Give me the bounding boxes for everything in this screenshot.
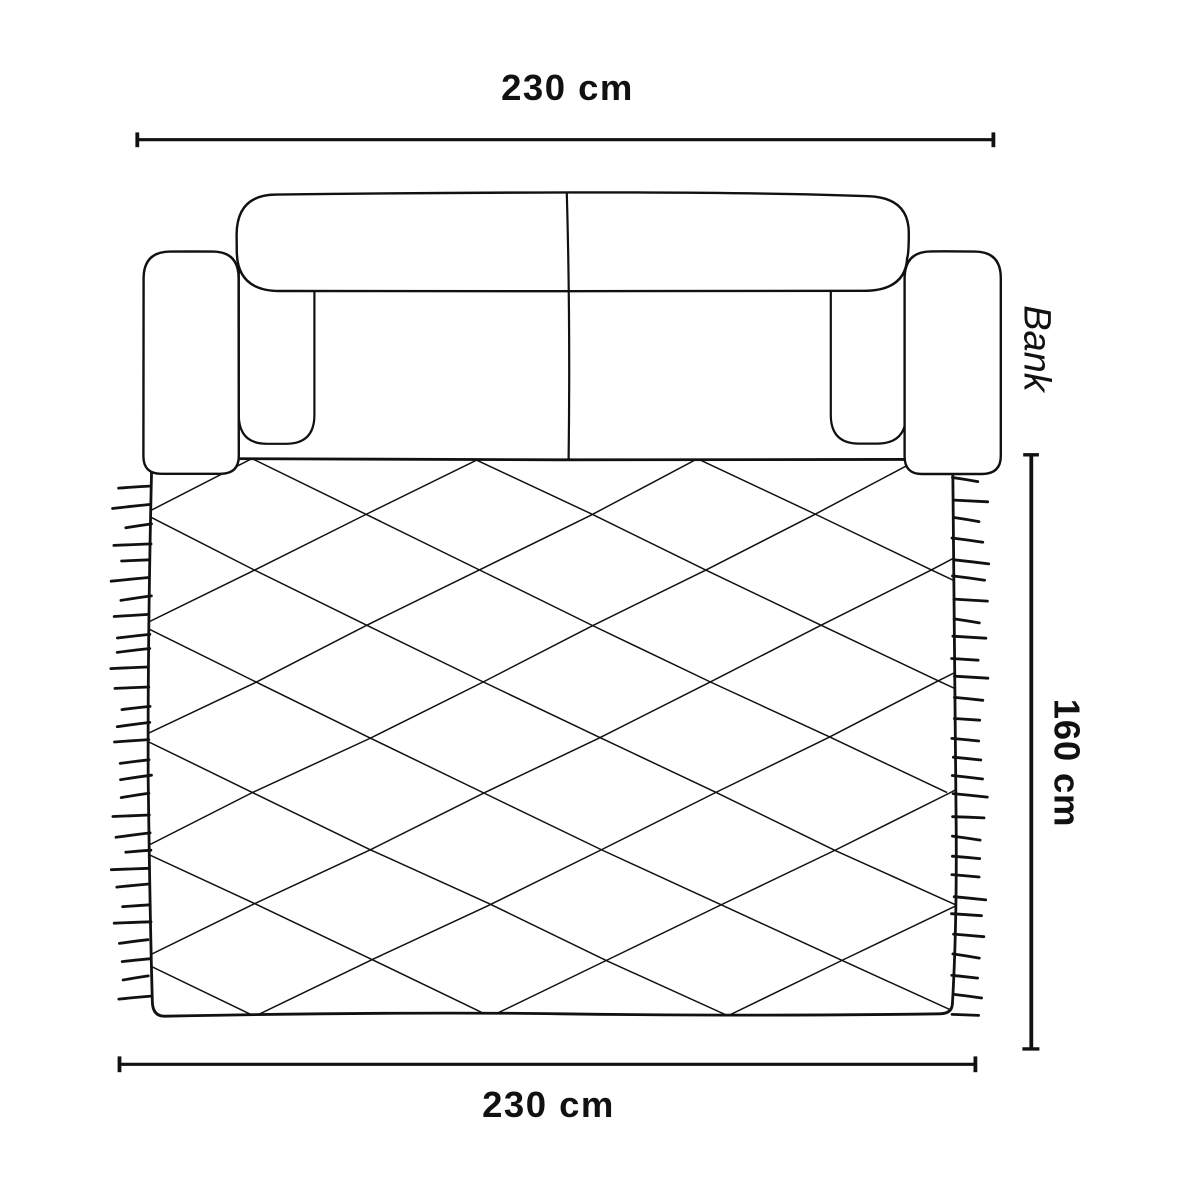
svg-text:230 cm: 230 cm [501, 67, 634, 108]
svg-text:160 cm: 160 cm [1047, 699, 1088, 828]
svg-text:Bank: Bank [1016, 305, 1058, 394]
svg-text:230 cm: 230 cm [482, 1084, 615, 1125]
